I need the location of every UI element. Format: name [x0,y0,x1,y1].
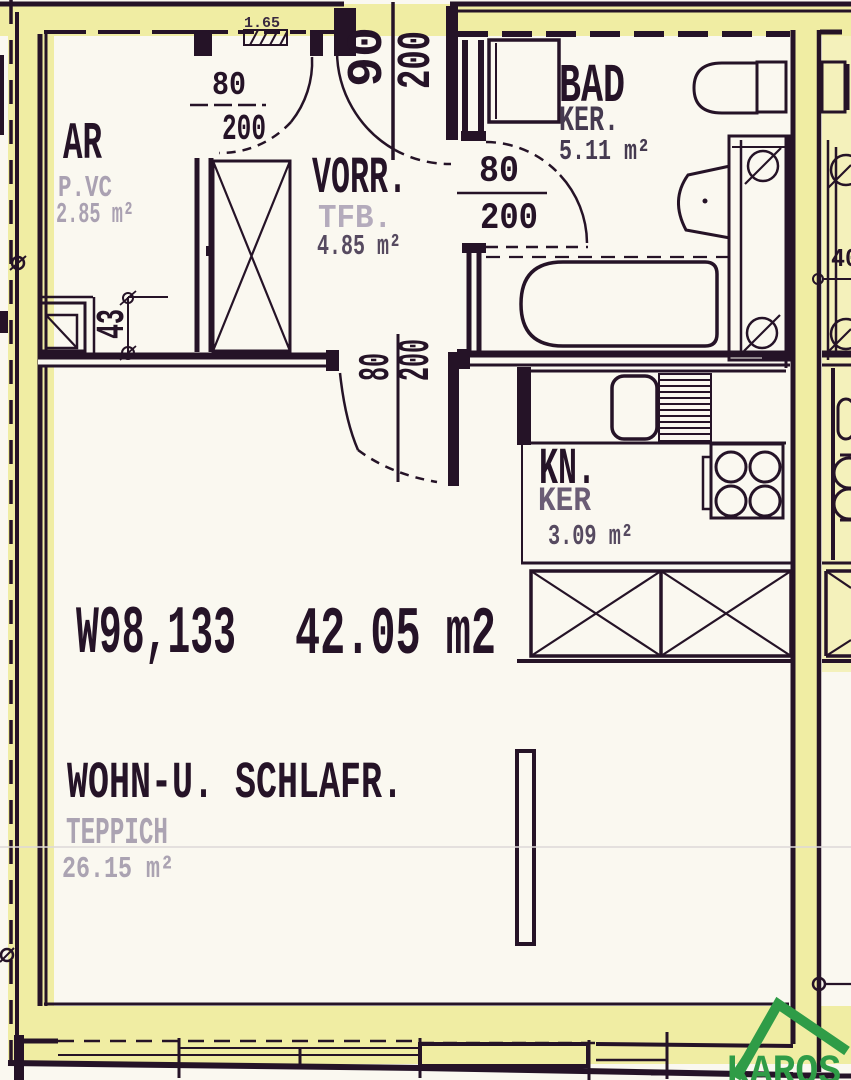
svg-text:2.85 m²: 2.85 m² [56,198,134,231]
svg-text:80: 80 [212,67,246,104]
svg-text:W98,133: W98,133 [76,596,236,673]
svg-text:26.15 m²: 26.15 m² [62,852,174,887]
svg-text:42.05 m2: 42.05 m2 [295,597,496,674]
svg-text:TEPPICH: TEPPICH [66,812,168,855]
svg-text:90: 90 [340,27,397,87]
svg-text:KAROS: KAROS [727,1048,841,1080]
svg-text:WOHN-U. SCHLAFR.: WOHN-U. SCHLAFR. [67,754,403,813]
svg-text:200: 200 [222,109,266,150]
svg-text:5.11 m²: 5.11 m² [559,135,650,168]
svg-text:200: 200 [480,198,538,240]
svg-text:4.85 m²: 4.85 m² [317,230,401,263]
svg-text:KER: KER [538,483,592,521]
svg-text:43: 43 [91,309,136,339]
svg-text:40: 40 [831,244,851,274]
svg-text:200: 200 [391,31,444,89]
svg-text:AR: AR [63,114,102,174]
svg-text:200: 200 [391,339,442,381]
svg-text:3.09 m²: 3.09 m² [548,520,633,553]
svg-text:80: 80 [479,151,519,193]
svg-text:1.65: 1.65 [244,15,280,32]
